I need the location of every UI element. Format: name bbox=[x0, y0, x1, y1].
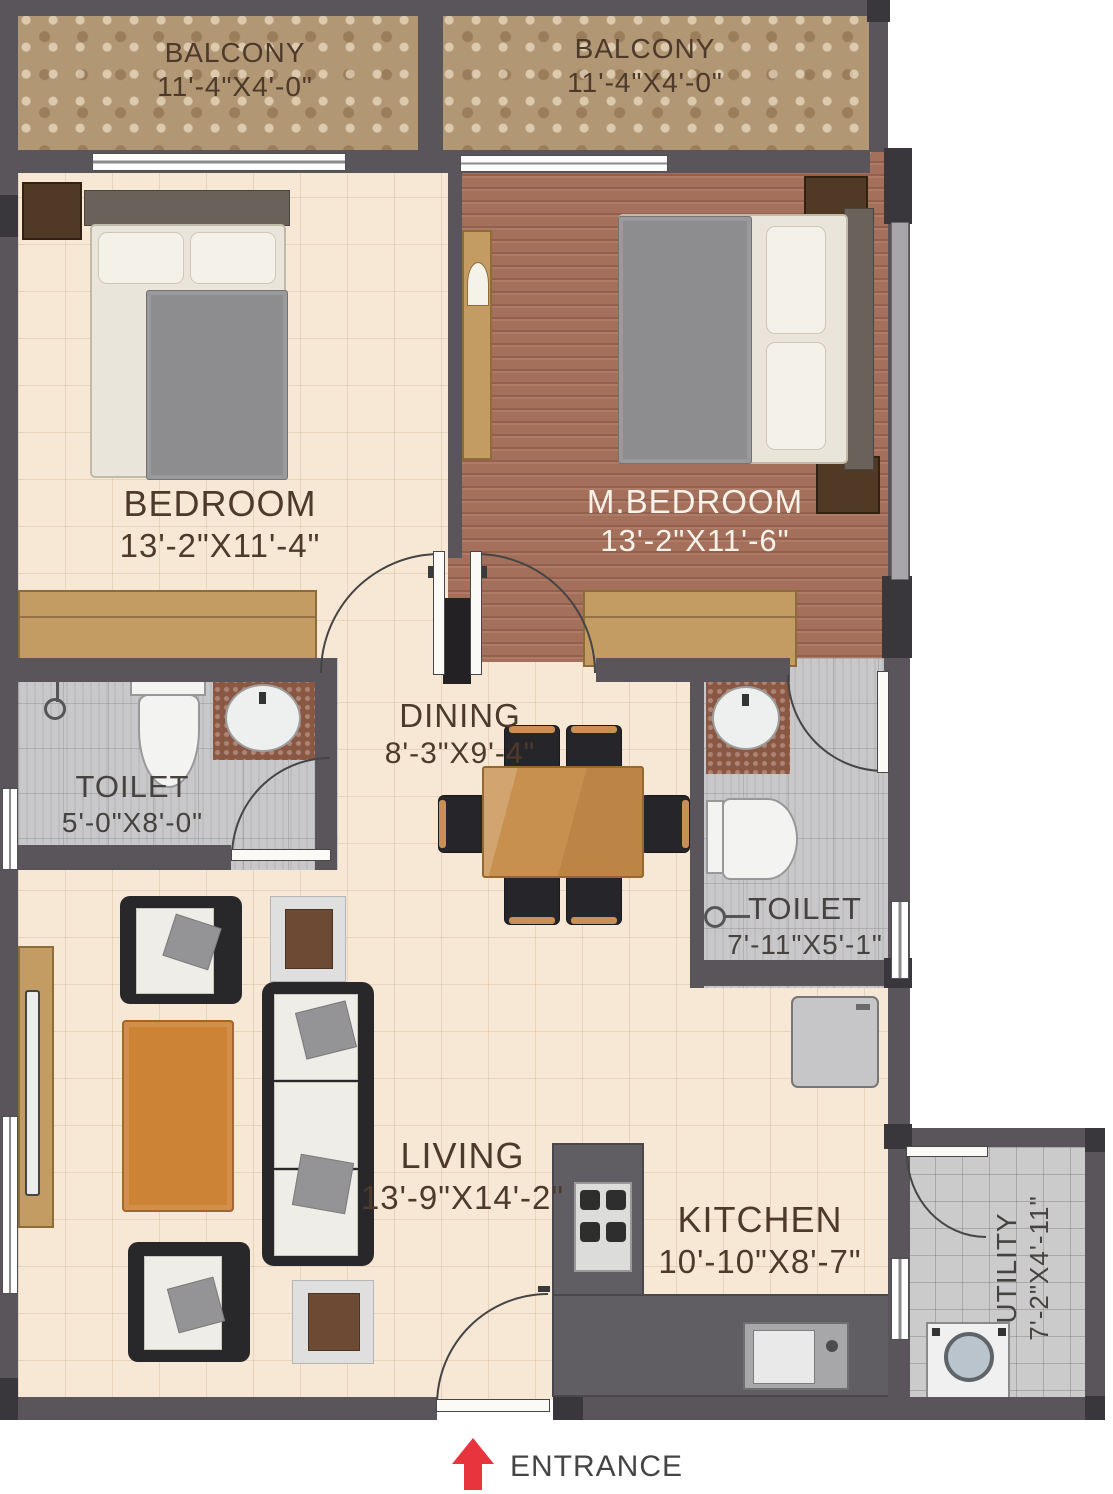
utility-window bbox=[891, 1258, 909, 1340]
wall-bottom-right bbox=[553, 1397, 1105, 1420]
dining-chair bbox=[640, 795, 690, 853]
wall-balcony-divider bbox=[418, 0, 443, 154]
wall-block bbox=[0, 1378, 18, 1420]
dining-chair bbox=[566, 873, 622, 925]
wall-bottom-left bbox=[18, 1397, 437, 1420]
washing-machine-drum bbox=[944, 1332, 994, 1382]
room-name: BALCONY bbox=[80, 36, 390, 70]
wall-utility-right bbox=[1085, 1128, 1105, 1420]
bedside-table bbox=[22, 182, 82, 240]
pillow bbox=[190, 232, 276, 284]
wall-bedroom-divider bbox=[448, 150, 462, 558]
room-name: TOILET bbox=[25, 768, 240, 806]
entrance-arrow-icon bbox=[452, 1438, 494, 1492]
tv-icon bbox=[25, 990, 40, 1196]
room-name: M.BEDROOM bbox=[530, 482, 860, 522]
floor-plan: BALCONY 11'-4"X4'-0" BALCONY 11'-4"X4'-0… bbox=[0, 0, 1113, 1494]
utility-door bbox=[906, 1146, 988, 1157]
room-dims: 13'-2"X11'-4" bbox=[60, 526, 380, 566]
wall-block bbox=[867, 0, 890, 22]
room-dims: 11'-4"X4'-0" bbox=[490, 66, 800, 100]
door-handle bbox=[482, 566, 487, 578]
wall-utility-top bbox=[888, 1128, 1105, 1147]
room-name: DINING bbox=[320, 696, 600, 736]
pillow bbox=[766, 226, 826, 334]
master-window bbox=[460, 155, 668, 172]
wall-block bbox=[882, 576, 912, 658]
room-dims: 8'-3"X9'-4" bbox=[320, 736, 600, 773]
toiletL-window bbox=[2, 788, 18, 870]
entrance-door bbox=[436, 1399, 550, 1412]
room-dims: 13'-9"X14'-2" bbox=[320, 1178, 605, 1218]
toilet-right-label: TOILET 7'-11"X5'-1" bbox=[700, 890, 910, 962]
sink-tap bbox=[826, 1340, 838, 1352]
room-dims: 7'-2"X4'-11" bbox=[1024, 1178, 1056, 1358]
toilet-left-label: TOILET 5'-0"X8'-0" bbox=[25, 768, 240, 840]
hob-burner bbox=[580, 1222, 600, 1242]
wall-top bbox=[0, 0, 888, 16]
hob-burner bbox=[606, 1222, 626, 1242]
wall-toiletR-bottom bbox=[690, 960, 910, 986]
room-dims: 10'-10"X8'-7" bbox=[630, 1242, 890, 1282]
door-handle bbox=[428, 566, 433, 578]
room-name: UTILITY bbox=[990, 1178, 1024, 1358]
entrance-label: ENTRANCE bbox=[510, 1450, 683, 1484]
balcony-left-label: BALCONY 11'-4"X4'-0" bbox=[80, 36, 390, 104]
room-dims: 7'-11"X5'-1" bbox=[700, 928, 910, 962]
dining-chair bbox=[504, 873, 560, 925]
bedroom-wardrobe bbox=[18, 590, 317, 667]
dining-chair bbox=[438, 795, 488, 853]
room-dims: 11'-4"X4'-0" bbox=[80, 70, 390, 104]
wall-balcony-right-end bbox=[869, 0, 888, 152]
living-window bbox=[2, 1116, 18, 1294]
master-bed-blanket bbox=[618, 216, 752, 464]
toiletL-door bbox=[231, 849, 331, 861]
master-side-window bbox=[891, 222, 909, 580]
bed-blanket bbox=[146, 290, 288, 480]
shower-head-icon bbox=[44, 698, 66, 720]
hob-burner bbox=[606, 1190, 626, 1210]
room-dims: 5'-0"X8'-0" bbox=[25, 806, 240, 840]
kitchen-label: KITCHEN 10'-10"X8'-7" bbox=[630, 1198, 890, 1282]
washing-machine-knob bbox=[932, 1328, 940, 1336]
bedroom-label: BEDROOM 13'-2"X11'-4" bbox=[60, 482, 380, 566]
wall-toiletL-top bbox=[18, 658, 337, 682]
master-wardrobe bbox=[583, 590, 797, 667]
toilet-bowl-icon bbox=[722, 798, 798, 880]
side-table bbox=[292, 1280, 374, 1364]
wall-block bbox=[0, 195, 18, 237]
room-name: BALCONY bbox=[490, 32, 800, 66]
side-table bbox=[270, 896, 346, 982]
balcony-right-label: BALCONY 11'-4"X4'-0" bbox=[490, 32, 800, 100]
bedroom-door bbox=[433, 551, 445, 675]
door-handle bbox=[538, 1286, 550, 1292]
utility-label: UTILITY 7'-2"X4'-11" bbox=[990, 1178, 1070, 1358]
pillow bbox=[98, 232, 184, 284]
bed-headboard bbox=[84, 190, 290, 226]
living-label: LIVING 13'-9"X14'-2" bbox=[320, 1134, 605, 1218]
basin-tap bbox=[742, 694, 749, 706]
wall-toiletL-bottom bbox=[0, 845, 231, 870]
dining-label: DINING 8'-3"X9'-4" bbox=[320, 696, 600, 773]
wall-block bbox=[1085, 1128, 1105, 1152]
room-name: KITCHEN bbox=[630, 1198, 890, 1242]
pillow bbox=[766, 342, 826, 450]
wall-block bbox=[884, 148, 912, 224]
room-name: BEDROOM bbox=[60, 482, 380, 526]
basin-tap bbox=[259, 692, 266, 704]
dining-table bbox=[482, 766, 644, 878]
room-dims: 13'-2"X11'-6" bbox=[530, 522, 860, 560]
toiletR-door bbox=[877, 671, 889, 773]
wall-block bbox=[553, 1397, 583, 1420]
sink-basin bbox=[753, 1330, 815, 1384]
master-bedroom-label: M.BEDROOM 13'-2"X11'-6" bbox=[530, 482, 860, 560]
wall-block bbox=[1085, 1396, 1105, 1420]
wall-pillar bbox=[443, 598, 471, 684]
master-door bbox=[470, 551, 482, 675]
room-name: TOILET bbox=[700, 890, 910, 928]
refrigerator-handle bbox=[856, 1004, 870, 1010]
room-name: LIVING bbox=[320, 1134, 605, 1178]
master-bed-headboard bbox=[844, 208, 874, 470]
bedroom-window bbox=[92, 153, 346, 171]
dresser-mirror bbox=[467, 262, 489, 306]
coffee-table bbox=[122, 1020, 234, 1212]
